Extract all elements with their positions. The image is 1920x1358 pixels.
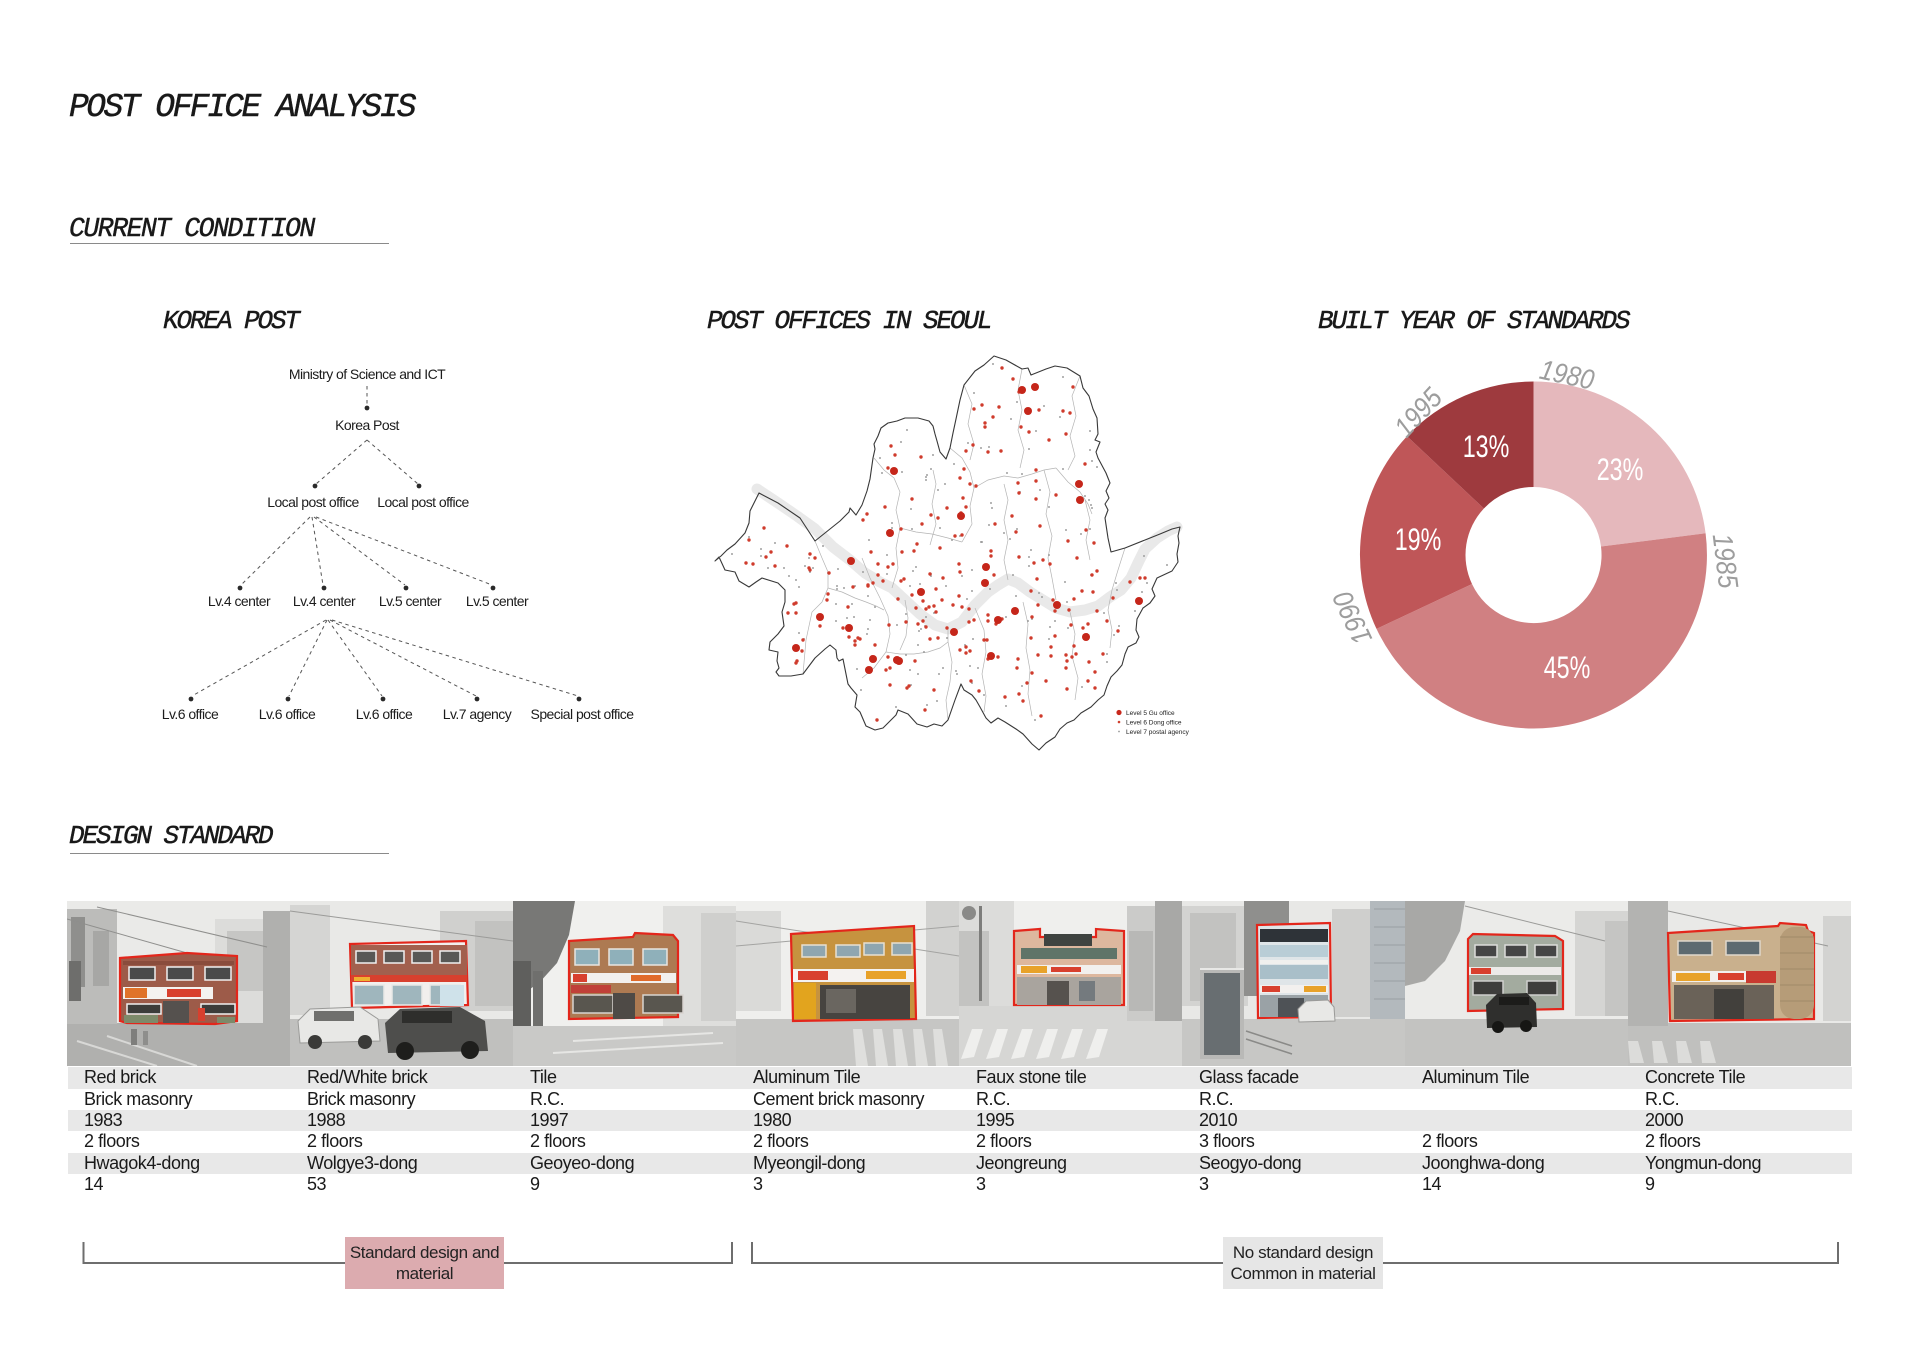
svg-text:Lv.5 center: Lv.5 center — [466, 593, 529, 609]
svg-text:Lv.4 center: Lv.4 center — [293, 593, 356, 609]
svg-text:Level 7 postal agency: Level 7 postal agency — [1126, 729, 1190, 736]
svg-text:Lv.6 office: Lv.6 office — [259, 706, 316, 722]
svg-text:19%: 19% — [1395, 522, 1442, 557]
svg-text:Korea Post: Korea Post — [335, 417, 399, 433]
svg-text:Lv.6 office: Lv.6 office — [162, 706, 219, 722]
svg-text:Lv.4 center: Lv.4 center — [208, 593, 271, 609]
svg-text:Level 5 Gu office: Level 5 Gu office — [1126, 710, 1175, 717]
svg-text:Local post office: Local post office — [377, 494, 469, 510]
svg-text:Ministry of Science and ICT: Ministry of Science and ICT — [289, 366, 446, 382]
svg-text:23%: 23% — [1597, 452, 1644, 487]
svg-text:Lv.5 center: Lv.5 center — [379, 593, 442, 609]
svg-text:Lv.6 office: Lv.6 office — [356, 706, 413, 722]
svg-text:13%: 13% — [1463, 429, 1510, 464]
svg-text:1985: 1985 — [1706, 532, 1744, 591]
svg-text:Level 6 Dong office: Level 6 Dong office — [1126, 720, 1182, 727]
svg-text:45%: 45% — [1544, 650, 1591, 685]
svg-text:Lv.7 agency: Lv.7 agency — [443, 706, 512, 722]
svg-text:Special post office: Special post office — [531, 706, 635, 722]
svg-text:Local post office: Local post office — [267, 494, 359, 510]
